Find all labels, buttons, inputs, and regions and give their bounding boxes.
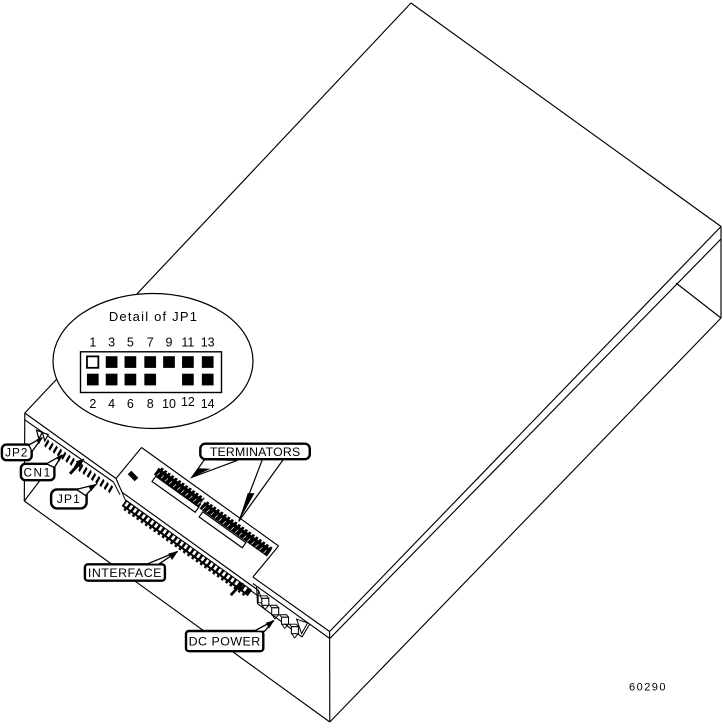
svg-text:9: 9	[166, 336, 173, 350]
svg-text:14: 14	[201, 397, 215, 411]
svg-text:6: 6	[127, 397, 134, 411]
svg-text:7: 7	[147, 336, 154, 350]
svg-text:DC POWER: DC POWER	[189, 634, 261, 648]
svg-text:4: 4	[108, 397, 115, 411]
svg-text:1: 1	[89, 336, 96, 350]
svg-text:13: 13	[201, 336, 215, 350]
svg-text:12: 12	[181, 395, 195, 409]
svg-text:TERMINATORS: TERMINATORS	[210, 445, 301, 459]
svg-text:CN1: CN1	[24, 465, 52, 479]
svg-text:11: 11	[181, 336, 194, 350]
svg-text:5: 5	[127, 336, 134, 350]
svg-text:2: 2	[89, 397, 96, 411]
svg-text:INTERFACE: INTERFACE	[88, 566, 162, 580]
svg-text:Detail of JP1: Detail of JP1	[109, 309, 198, 324]
svg-text:8: 8	[147, 397, 154, 411]
svg-text:3: 3	[108, 336, 115, 350]
svg-text:10: 10	[162, 397, 176, 411]
svg-text:60290: 60290	[629, 682, 667, 694]
svg-text:JP1: JP1	[57, 492, 81, 506]
svg-text:JP2: JP2	[5, 446, 28, 460]
